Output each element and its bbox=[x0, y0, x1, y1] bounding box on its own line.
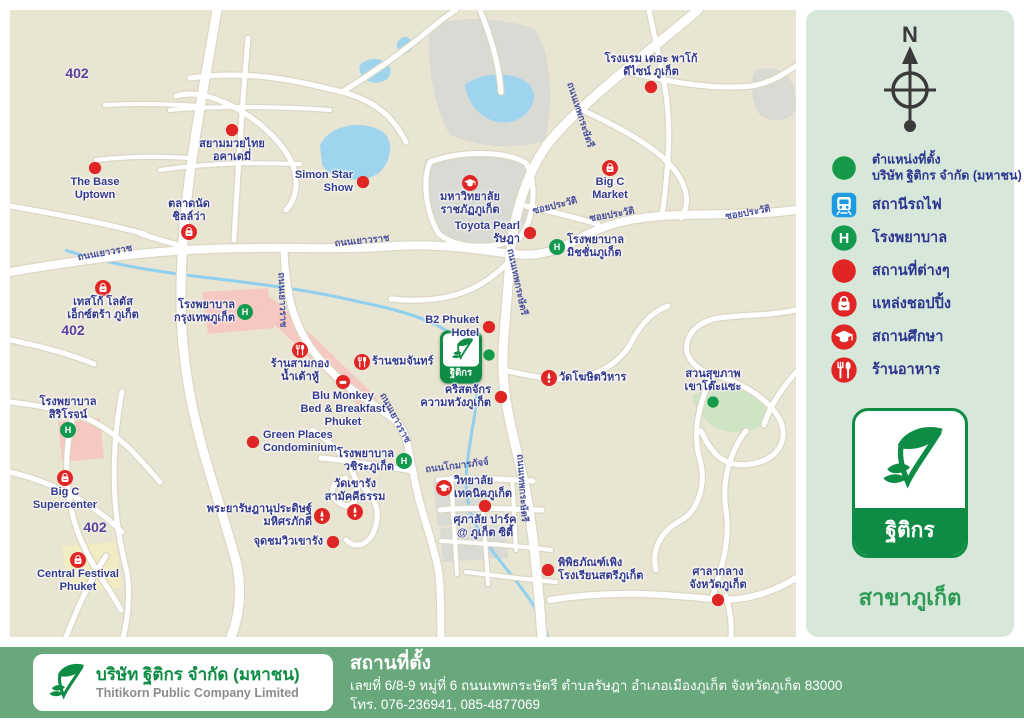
phone-line: โทร. 076-236941, 085-4877069 bbox=[350, 695, 842, 715]
map-marker-label: พระยารัษฎานุประดิษฐ์มหิศรภักดี bbox=[207, 503, 312, 529]
place-icon bbox=[478, 499, 492, 513]
shopping-icon bbox=[831, 290, 858, 317]
education-icon bbox=[831, 323, 858, 350]
map-marker-label: เทสโก้ โลตัสเอ็กซ์ตร้า ภูเก็ต bbox=[67, 296, 139, 322]
hospital-icon bbox=[396, 453, 413, 470]
hospital-icon bbox=[237, 304, 254, 321]
address-line: เลขที่ 6/8-9 หมู่ที่ 6 ถนนเทพกระษัตรี ตำ… bbox=[350, 676, 842, 696]
legend-item-green-dot: ตำแหน่งที่ตั้งบริษัท ฐิติกร จำกัด (มหาชน… bbox=[806, 148, 1014, 188]
lodging-icon bbox=[336, 375, 351, 390]
map-marker-label: โรงแรม เดอะ พาโก้ดีไซน์ ภูเก็ต bbox=[605, 53, 698, 79]
green-dot-icon bbox=[483, 349, 496, 362]
legend-item-label: ร้านอาหาร bbox=[872, 360, 940, 378]
map-marker-label: B2 PhuketHotel bbox=[425, 314, 479, 340]
green-dot-icon bbox=[831, 155, 858, 182]
temple-icon bbox=[541, 370, 558, 387]
shopping-icon bbox=[70, 552, 87, 569]
map-marker-label: วัดโฆษิตวิหาร bbox=[559, 372, 626, 385]
place-icon bbox=[356, 175, 370, 189]
place-icon bbox=[541, 563, 555, 577]
map-marker-label: โรงพยาบาลสิริโรจน์ bbox=[40, 396, 97, 422]
place-icon bbox=[644, 80, 658, 94]
legend-item-place: สถานที่ต่างๆ bbox=[806, 254, 1014, 287]
green-dot-icon bbox=[707, 396, 720, 409]
temple-icon bbox=[314, 508, 331, 525]
legend-panel: N ตำแหน่งที่ตั้งบริษัท ฐิติกร จำกัด (มหา… bbox=[806, 10, 1014, 637]
legend-item-label: สถานศึกษา bbox=[872, 327, 943, 345]
map-marker-label: Simon StarShow bbox=[295, 169, 353, 195]
education-icon bbox=[462, 175, 479, 192]
map-marker-label: Blu MonkeyBed & BreakfastPhuket bbox=[301, 390, 386, 429]
hospital-icon bbox=[549, 239, 566, 256]
restaurant-icon bbox=[354, 354, 371, 371]
map-marker-label: The BaseUptown bbox=[71, 176, 120, 202]
map-marker-label: ศาลากลางจังหวัดภูเก็ต bbox=[689, 566, 746, 592]
map-marker-label: Toyota Pearlรัษฎา bbox=[455, 220, 520, 246]
footer-bar: บริษัท ฐิติกร จำกัด (มหาชน) Thitikorn Pu… bbox=[0, 647, 1024, 718]
legend-item-label: โรงพยาบาล bbox=[872, 228, 947, 246]
map-marker-label: สวนสุขภาพเขาโต๊ะแซะ bbox=[685, 368, 742, 394]
place-icon bbox=[523, 226, 537, 240]
hospital-icon bbox=[60, 422, 77, 439]
legend-item-shopping: แหล่งชอปปิ้ง bbox=[806, 287, 1014, 320]
route-shield: 402 bbox=[83, 519, 106, 535]
map-marker-label: ร้านชมจันทร์ bbox=[372, 356, 433, 369]
map-marker-label: Green PlacesCondominium bbox=[263, 429, 337, 455]
train-icon bbox=[831, 191, 858, 218]
map-marker-label: ศุภาลัย ปาร์ค@ ภูเก็ต ซิตี้ bbox=[453, 514, 516, 540]
map-marker-label: โรงพยาบาลกรุงเทพภูเก็ต bbox=[174, 299, 235, 325]
map-marker-label: โรงพยาบาลมิชชั่นภูเก็ต bbox=[567, 234, 624, 260]
svg-text:N: N bbox=[902, 24, 918, 47]
place-icon bbox=[246, 435, 260, 449]
legend-item-hospital: โรงพยาบาล bbox=[806, 221, 1014, 254]
shopping-icon bbox=[95, 280, 112, 297]
place-icon bbox=[831, 257, 858, 284]
map-marker-label: Big CMarket bbox=[592, 176, 627, 202]
map-marker-label: Big CSupercenter bbox=[33, 486, 97, 512]
hospital-icon bbox=[831, 224, 858, 251]
legend-item-education: สถานศึกษา bbox=[806, 320, 1014, 353]
logo-wordmark: ฐิติกร bbox=[855, 508, 965, 555]
road-label: ถนนเยาวราช bbox=[274, 272, 291, 328]
map-marker-label: ร้านสามกองน้ำเต้าหู้ bbox=[271, 358, 329, 384]
company-marker-label: ฐิติกร bbox=[443, 367, 479, 381]
place-icon bbox=[494, 390, 508, 404]
phuket-map: ฐิติกร The BaseUptown สยามมวยไทยอคาเดมี่… bbox=[10, 10, 796, 637]
legend-item-train: สถานีรถไฟ bbox=[806, 188, 1014, 221]
legend-item-restaurant: ร้านอาหาร bbox=[806, 353, 1014, 386]
location-title: สถานที่ตั้ง bbox=[350, 652, 842, 676]
restaurant-icon bbox=[292, 342, 309, 359]
map-marker-label: มหาวิทยาลัยราชภัฏภูเก็ต bbox=[440, 191, 500, 217]
map-base-graphics bbox=[10, 10, 796, 637]
company-card: บริษัท ฐิติกร จำกัด (มหาชน) Thitikorn Pu… bbox=[33, 654, 333, 711]
legend-item-label: สถานีรถไฟ bbox=[872, 195, 942, 213]
map-marker-label: สยามมวยไทยอคาเดมี่ bbox=[199, 138, 265, 164]
place-icon bbox=[225, 123, 239, 137]
place-icon bbox=[711, 593, 725, 607]
place-icon bbox=[326, 535, 340, 549]
legend-item-label: สถานที่ต่างๆ bbox=[872, 261, 950, 279]
map-marker-label: คริสตจักรความหวังภูเก็ต bbox=[420, 384, 491, 410]
temple-icon bbox=[347, 504, 364, 521]
route-shield: 402 bbox=[61, 322, 84, 338]
education-icon bbox=[436, 480, 453, 497]
map-marker-label: โรงพยาบาลวชิระภูเก็ต bbox=[337, 448, 394, 474]
legend-item-label: แหล่งชอปปิ้ง bbox=[872, 294, 951, 312]
compass-rose-icon: N bbox=[864, 24, 956, 142]
route-shield: 402 bbox=[65, 65, 88, 81]
restaurant-icon bbox=[831, 356, 858, 383]
place-icon bbox=[482, 320, 496, 334]
map-marker-label: พิพิธภัณฑ์เพิงโรงเรียนสตรีภูเก็ต bbox=[558, 557, 643, 583]
legend-item-label: ตำแหน่งที่ตั้งบริษัท ฐิติกร จำกัด (มหาชน… bbox=[872, 152, 1022, 183]
shopping-icon bbox=[181, 224, 198, 241]
map-marker-label: วิทยาลัยเทคนิคภูเก็ต bbox=[454, 475, 512, 501]
thitikorn-leaf-logo bbox=[855, 411, 965, 508]
thitikorn-leaf-logo bbox=[43, 661, 87, 705]
branch-label: สาขาภูเก็ต bbox=[806, 580, 1014, 615]
map-marker-label: ตลาดนัดชิลล์ว่า bbox=[168, 198, 210, 224]
map-marker-label: Central FestivalPhuket bbox=[37, 568, 119, 594]
shopping-icon bbox=[57, 470, 74, 487]
company-name-en: Thitikorn Public Company Limited bbox=[96, 686, 300, 700]
place-icon bbox=[88, 161, 102, 175]
map-marker-label: วัดเขารังสามัคคีธรรม bbox=[325, 478, 386, 504]
company-name-th: บริษัท ฐิติกร จำกัด (มหาชน) bbox=[96, 665, 300, 685]
thitikorn-logo-card: ฐิติกร bbox=[852, 408, 968, 558]
map-marker-label: จุดชมวิวเขารัง bbox=[254, 536, 323, 549]
shopping-icon bbox=[602, 160, 619, 177]
